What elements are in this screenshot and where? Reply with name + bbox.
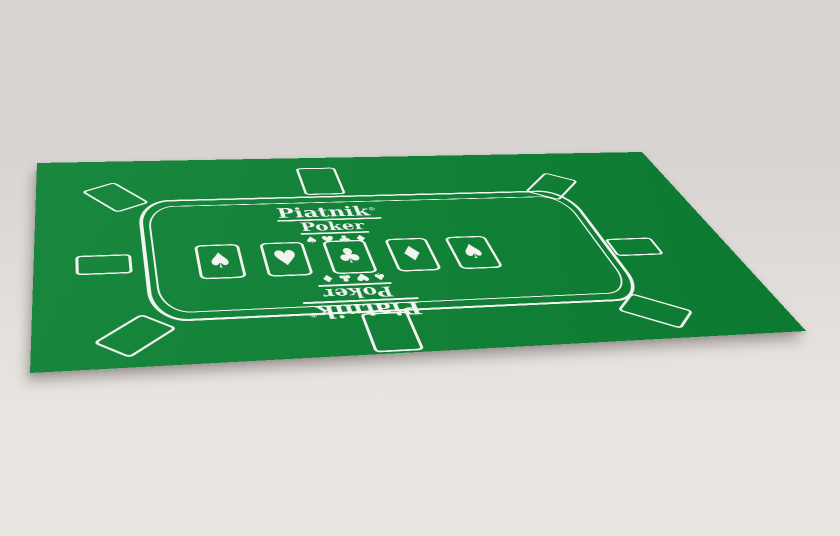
brand-block-top: Piatnik® Poker ♠♥♣♦ <box>273 204 392 245</box>
heart-icon: ♥ <box>270 248 302 269</box>
studio-backdrop: Piatnik® Poker ♠♥♣♦ ♠ ♥ ♣ ♦ ♠ <box>0 0 840 536</box>
brand-block-bottom-inverted: Piatnik® Poker ♠♥♣♦ <box>294 271 426 321</box>
player-card-spot-left <box>75 254 133 275</box>
diamond-icon: ♦ <box>396 244 430 265</box>
player-card-spot-top-left <box>81 182 149 213</box>
player-card-spot-bottom-left <box>93 314 178 358</box>
player-card-spot-top-middle <box>295 168 345 195</box>
player-card-spot-bottom-right <box>617 293 693 329</box>
mat-perspective-wrapper: Piatnik® Poker ♠♥♣♦ ♠ ♥ ♣ ♦ ♠ <box>0 0 760 460</box>
poker-mat: Piatnik® Poker ♠♥♣♦ ♠ ♥ ♣ ♦ ♠ <box>30 152 806 373</box>
registered-mark-icon: ® <box>308 311 319 318</box>
spade-icon: ♠ <box>456 242 491 262</box>
brand-product-inverted: Poker <box>318 282 396 299</box>
spade-icon: ♠ <box>205 251 236 273</box>
suits-row-icon: ♠♥♣♦ <box>316 272 389 283</box>
club-icon: ♣ <box>333 246 366 267</box>
community-card-1: ♠ <box>194 244 247 280</box>
brand-product-text: Poker <box>318 282 396 299</box>
registered-mark-icon: ® <box>367 207 377 212</box>
